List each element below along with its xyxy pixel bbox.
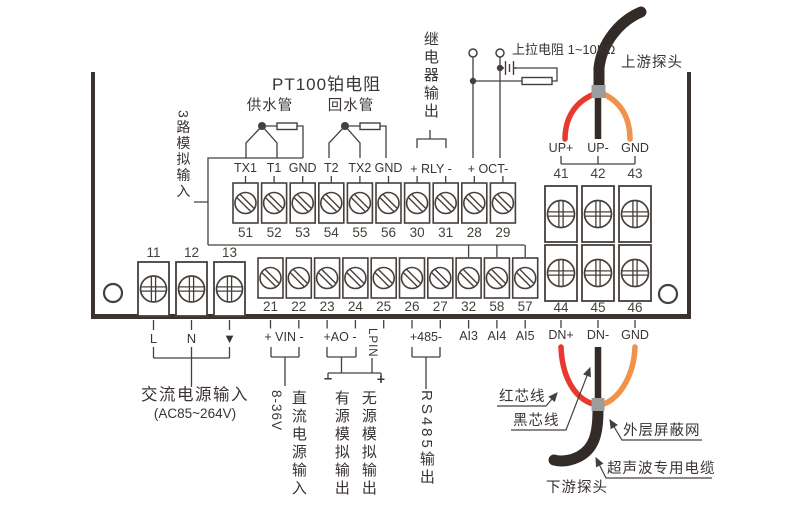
downstream-cable — [554, 347, 635, 461]
oct-pins-label: + OCT- — [468, 163, 509, 176]
terminal-number: 55 — [352, 226, 367, 240]
pt100-return-circuit — [329, 122, 386, 158]
terminal-number: 53 — [295, 226, 310, 240]
relay-bracket — [417, 130, 446, 148]
terminal-number: 22 — [291, 300, 306, 314]
downstream-pin-label: GND — [621, 329, 649, 342]
terminal-number: 46 — [627, 301, 642, 315]
pt100-supply-circuit — [246, 122, 303, 158]
downstream-pin-label: DN+ — [548, 329, 573, 342]
upstream-cable — [565, 12, 641, 139]
terminal-number: 28 — [467, 226, 482, 240]
lpin-label: LPIN — [366, 328, 378, 358]
wiring-diagram: PT100铂电阻 供水管 回水管 继电器输出 上拉电阻 1~10KΩ 上游探头 … — [0, 0, 801, 515]
terminal-number: 32 — [461, 300, 476, 314]
power-pin-label: L — [150, 332, 157, 346]
ao-pins-label: +AO - — [324, 331, 357, 344]
analog-input-label: 3路模拟输入 — [176, 110, 191, 200]
shield-label: 外层屏蔽网 — [623, 424, 701, 439]
terminal-number: 51 — [238, 226, 253, 240]
return-pipe-label: 回水管 — [328, 99, 375, 114]
terminal-number: 41 — [553, 167, 568, 181]
terminal-number: 27 — [433, 300, 448, 314]
ai-pin-label: AI5 — [516, 330, 535, 343]
dn-plus-wire — [561, 347, 593, 404]
ao-plus-mark: + — [377, 372, 385, 387]
upstream-probe-label: 上游探头 — [621, 56, 683, 71]
upstream-pin-label: UP+ — [549, 142, 574, 155]
terminal-number: 56 — [381, 226, 396, 240]
dn-gnd-wire — [604, 347, 635, 404]
vin-pins-label: + VIN - — [264, 331, 303, 344]
power-pin-label: ▼ — [223, 332, 236, 346]
pullup-circuit — [469, 49, 557, 158]
terminal-number: 58 — [489, 300, 504, 314]
top-pin-label: TX1 — [234, 162, 257, 175]
pullup-resistor-label: 上拉电阻 1~10KΩ — [512, 43, 615, 57]
terminal-number: 43 — [627, 167, 642, 181]
terminal-number: 54 — [324, 226, 339, 240]
upstream-pin-label: GND — [621, 142, 649, 155]
top-pin-label: GND — [289, 162, 317, 175]
rs485-output-label: RS485输出 — [418, 390, 434, 487]
ao-minus-mark: – — [324, 371, 332, 387]
downstream-pin-label: DN- — [587, 329, 609, 342]
ultrasonic-cable-label: 超声波专用电缆 — [607, 462, 716, 477]
rs485-pins-label: +485- — [410, 331, 442, 344]
terminal-number: 52 — [267, 226, 282, 240]
ac-input-label: 交流电源输入 — [141, 387, 249, 404]
dc-voltage-label: 8-36V — [269, 390, 283, 431]
relay-output-label: 继电器输出 — [422, 31, 438, 121]
up-gnd-wire — [601, 93, 630, 139]
terminal-blocks — [138, 183, 651, 316]
black-core-label: 黑芯线 — [513, 414, 560, 429]
top-pin-label: GND — [375, 162, 403, 175]
ai-pin-label: AI3 — [459, 330, 478, 343]
relay-pins-label: + RLY - — [410, 163, 452, 176]
terminal-number: 23 — [320, 300, 335, 314]
terminal-number: 29 — [495, 226, 510, 240]
terminal-number: 12 — [184, 246, 199, 260]
top-pin-label: TX2 — [348, 162, 371, 175]
terminal-number: 25 — [376, 300, 391, 314]
ac-range-label: (AC85~264V) — [154, 407, 236, 421]
terminal-number: 57 — [518, 300, 533, 314]
upstream-ferrule — [592, 85, 606, 98]
terminal-number: 21 — [263, 300, 278, 314]
downstream-ferrule — [592, 398, 605, 411]
terminal-number: 44 — [553, 301, 568, 315]
terminal-number: 45 — [590, 301, 605, 315]
dc-input-label: 直流电源输入 — [290, 390, 306, 498]
diagram-title: PT100铂电阻 — [272, 76, 381, 94]
terminal-number: 26 — [404, 300, 419, 314]
terminal-number: 30 — [410, 226, 425, 240]
supply-pipe-label: 供水管 — [247, 99, 294, 114]
up-plus-wire — [565, 93, 597, 139]
terminal-number: 31 — [438, 226, 453, 240]
terminal-number: 13 — [222, 246, 237, 260]
passive-analog-out-label: 无源模拟输出 — [360, 390, 376, 498]
downstream-probe-label: 下游探头 — [546, 481, 608, 496]
top-pin-label: T2 — [324, 162, 339, 175]
red-core-label: 红芯线 — [499, 390, 546, 405]
terminal-number: 42 — [590, 167, 605, 181]
active-analog-out-label: 有源模拟输出 — [333, 390, 349, 498]
top-pin-label: T1 — [267, 162, 282, 175]
terminal-number: 11 — [146, 246, 160, 260]
ai-pin-label: AI4 — [488, 330, 507, 343]
upstream-pin-label: UP- — [587, 142, 609, 155]
power-pin-label: N — [187, 332, 196, 346]
terminal-number: 24 — [348, 300, 363, 314]
